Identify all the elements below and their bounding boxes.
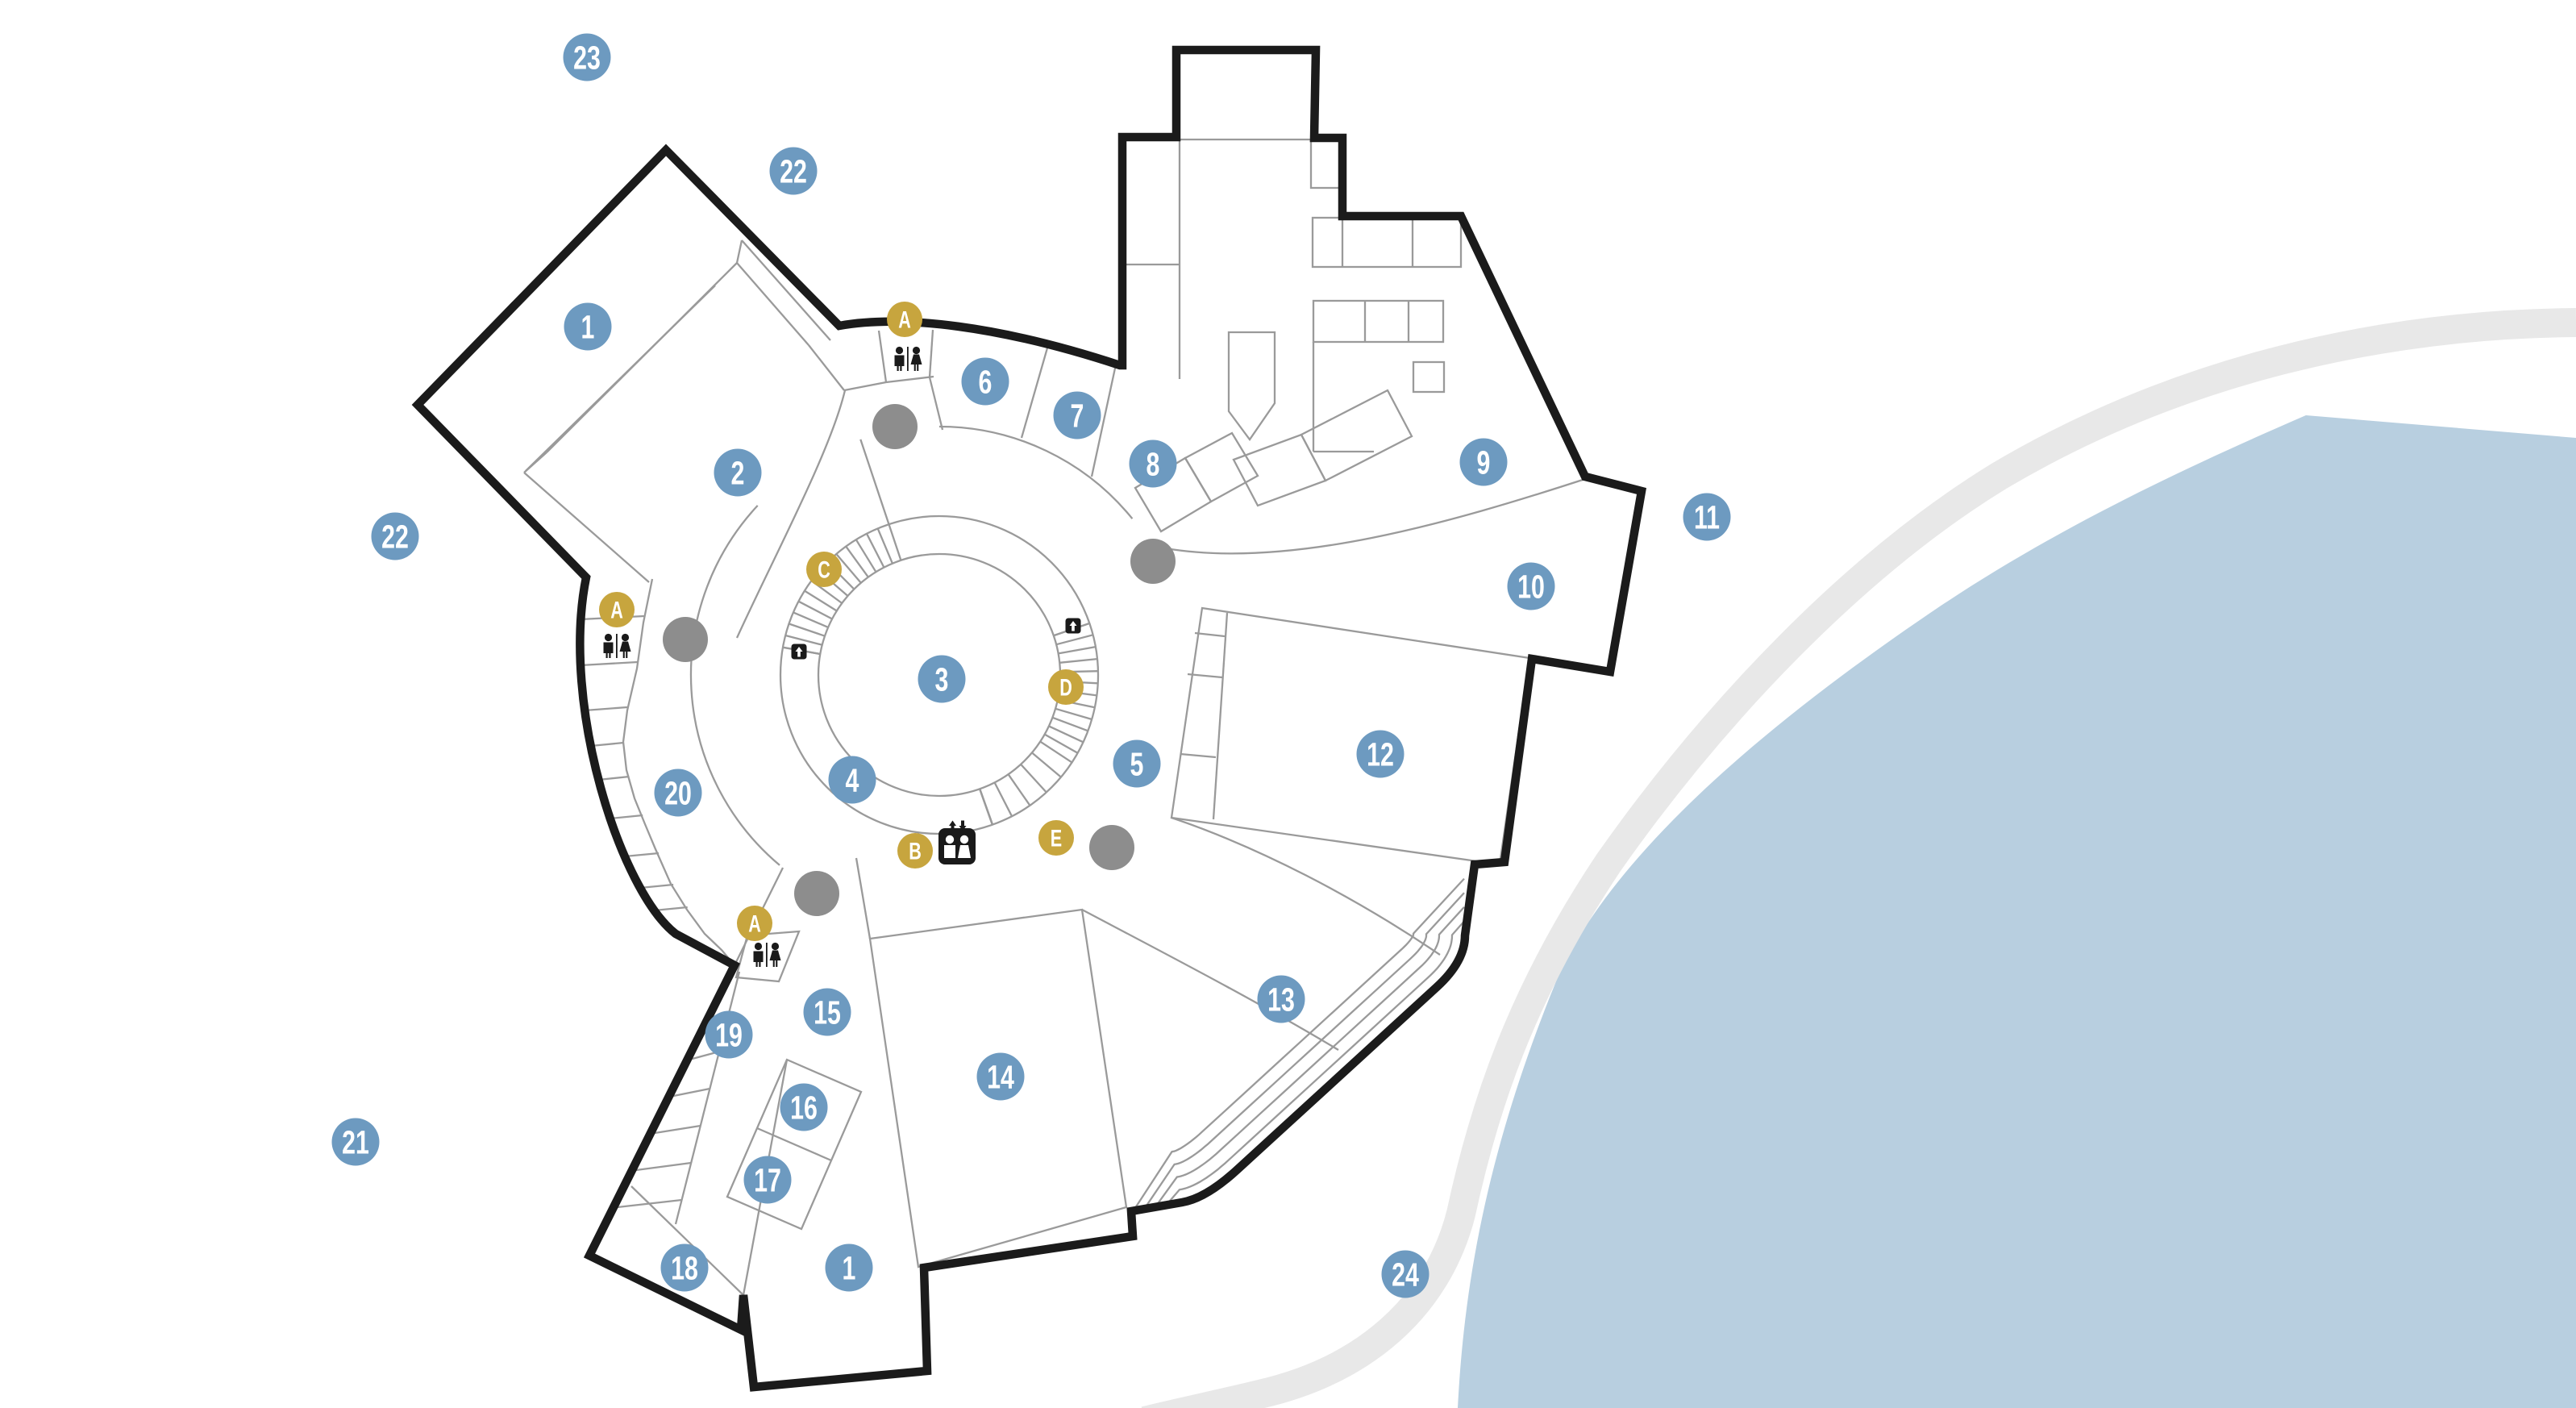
svg-text:9: 9 bbox=[1477, 444, 1491, 481]
svg-text:5: 5 bbox=[1130, 745, 1144, 783]
svg-text:B: B bbox=[909, 837, 922, 864]
svg-text:1: 1 bbox=[581, 308, 595, 346]
svg-text:23: 23 bbox=[573, 39, 601, 77]
svg-text:A: A bbox=[610, 596, 623, 623]
svg-text:6: 6 bbox=[979, 363, 993, 401]
svg-text:15: 15 bbox=[814, 994, 841, 1031]
svg-text:22: 22 bbox=[780, 152, 807, 190]
svg-text:10: 10 bbox=[1517, 568, 1545, 606]
svg-text:3: 3 bbox=[935, 660, 949, 698]
svg-text:7: 7 bbox=[1071, 397, 1084, 435]
svg-text:17: 17 bbox=[754, 1161, 781, 1199]
svg-text:1: 1 bbox=[843, 1249, 856, 1287]
svg-text:14: 14 bbox=[987, 1058, 1014, 1096]
svg-text:24: 24 bbox=[1392, 1256, 1419, 1293]
svg-text:18: 18 bbox=[671, 1249, 698, 1287]
svg-text:13: 13 bbox=[1267, 981, 1295, 1019]
svg-text:21: 21 bbox=[342, 1123, 369, 1161]
svg-text:20: 20 bbox=[664, 774, 692, 812]
svg-text:12: 12 bbox=[1367, 735, 1394, 773]
svg-text:E: E bbox=[1051, 824, 1062, 852]
svg-text:A: A bbox=[898, 306, 911, 333]
svg-text:8: 8 bbox=[1147, 445, 1160, 483]
svg-text:22: 22 bbox=[381, 518, 409, 556]
svg-text:11: 11 bbox=[1694, 498, 1720, 536]
svg-text:A: A bbox=[748, 910, 761, 937]
svg-text:16: 16 bbox=[790, 1089, 818, 1127]
svg-text:2: 2 bbox=[731, 454, 745, 492]
svg-text:19: 19 bbox=[715, 1016, 743, 1054]
svg-text:D: D bbox=[1059, 673, 1072, 701]
svg-text:C: C bbox=[818, 556, 830, 583]
svg-text:4: 4 bbox=[846, 761, 859, 799]
